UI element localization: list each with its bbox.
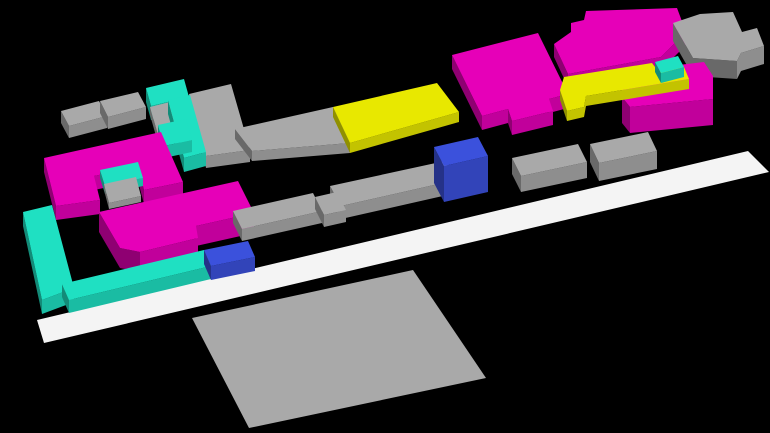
building-blue-center <box>434 137 488 202</box>
scene-stage <box>0 0 770 433</box>
scene-3d <box>0 0 770 433</box>
